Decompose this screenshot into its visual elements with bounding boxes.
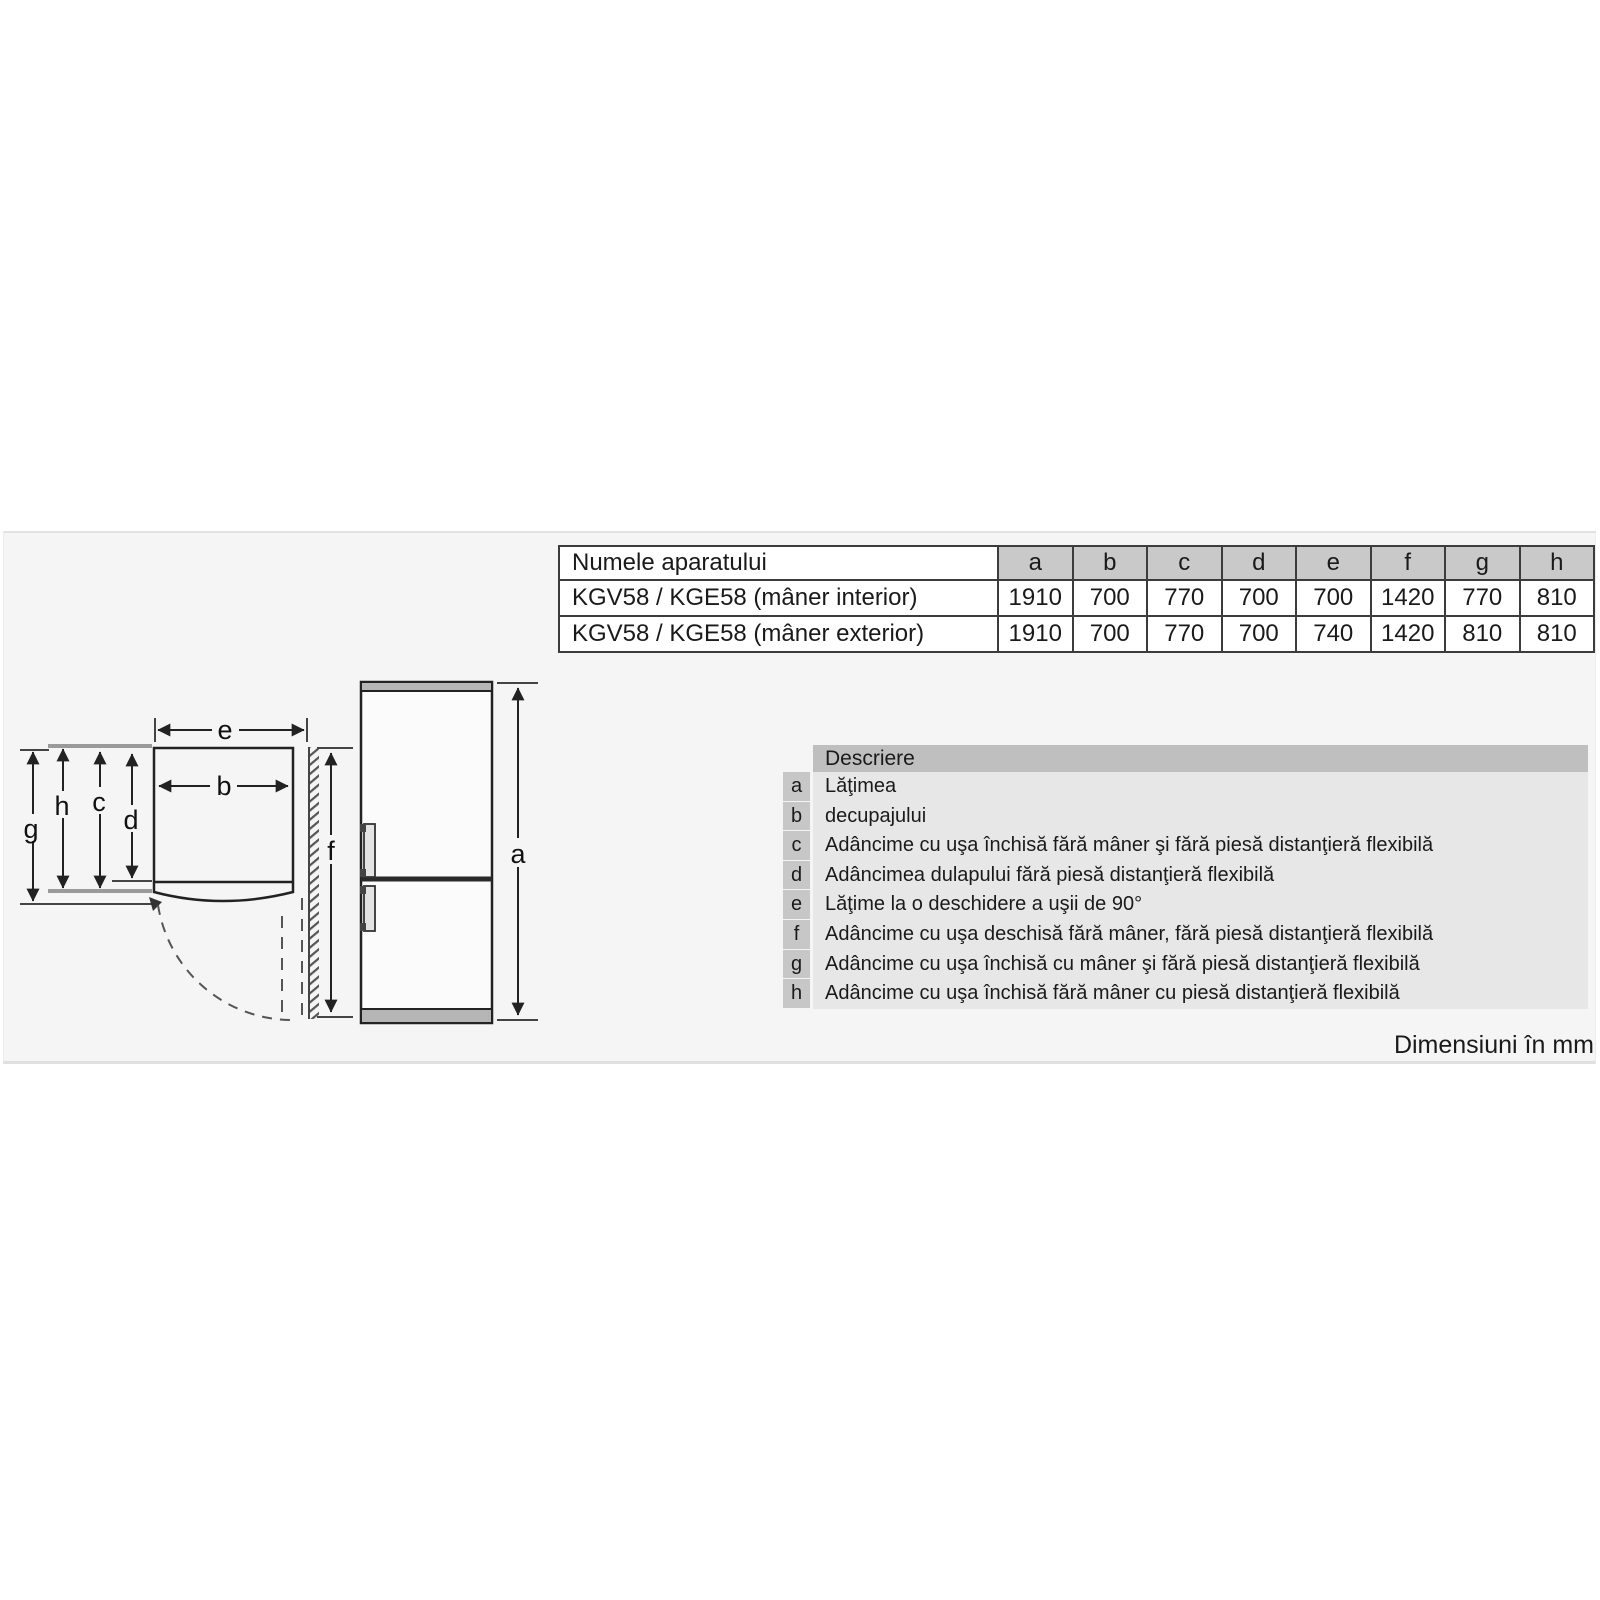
description-letter-h: h [783,979,810,1008]
value-cell: 770 [1147,616,1222,652]
table-header-col-g: g [1445,546,1520,580]
value-cell: 810 [1445,616,1520,652]
table-row: KGV58 / KGE58 (mâner exterior) 1910 700 … [559,616,1594,652]
value-cell: 770 [1147,580,1222,616]
description-letter-b: b [783,802,810,831]
dimension-label-g: g [23,814,38,844]
description-text-h: Adâncime cu uşa închisă fără mâner cu pi… [813,979,1588,1009]
description-header: Descriere [813,745,1588,772]
description-text-g: Adâncime cu uşa închisă cu mâner şi fără… [813,950,1588,980]
dimension-label-e: e [217,715,232,745]
dimension-label-h: h [54,791,69,821]
lower-handle-bracket-bottom [360,923,366,931]
description-letter-c: c [783,831,810,860]
manual-page: { "colors": { "content_bg": "#f5f5f5", "… [0,0,1600,1600]
front-view-plinth [361,1009,492,1023]
value-cell: 740 [1296,616,1371,652]
dimension-label-d: d [123,805,138,835]
description-body: Lăţimea decupajului Adâncime cu uşa înch… [813,772,1588,1009]
description-text-f: Adâncime cu uşa deschisă fără mâner, făr… [813,920,1588,950]
table-header-col-e: e [1296,546,1371,580]
value-cell: 770 [1445,580,1520,616]
dimension-label-c: c [92,787,106,817]
value-cell: 700 [1073,616,1148,652]
table-header-col-h: h [1520,546,1595,580]
value-cell: 700 [1073,580,1148,616]
value-cell: 1910 [998,616,1073,652]
wall-hatch [309,747,319,1019]
model-name: KGV58 / KGE58 (mâner interior) [559,580,998,616]
description-letter-f: f [783,920,810,949]
value-cell: 700 [1222,580,1297,616]
value-cell: 700 [1296,580,1371,616]
value-cell: 1910 [998,580,1073,616]
description-text-e: Lăţime la o deschidere a uşii de 90° [813,890,1588,920]
description-letter-column: a b c d e f g h [783,772,810,1008]
value-cell: 810 [1520,616,1595,652]
description-letter-d: d [783,861,810,890]
table-header-col-c: c [1147,546,1222,580]
table-header-col-a: a [998,546,1073,580]
value-cell: 700 [1222,616,1297,652]
top-view-door-closed [154,883,293,901]
model-name: KGV58 / KGE58 (mâner exterior) [559,616,998,652]
appliance-dimension-diagram: g h c d e b f a [0,650,560,1064]
value-cell: 1420 [1371,616,1446,652]
description-text-a: Lăţimea [813,772,1588,802]
table-row: KGV58 / KGE58 (mâner interior) 1910 700 … [559,580,1594,616]
table-header-col-d: d [1222,546,1297,580]
table-header-name: Numele aparatului [559,546,998,580]
table-header-col-b: b [1073,546,1148,580]
top-view-cabinet [154,748,293,882]
dimension-label-a: a [510,839,526,869]
door-swing-arc [158,905,295,1020]
front-view-body [361,682,492,1023]
front-view-top-band [361,682,492,691]
dimension-label-b: b [216,771,231,801]
description-text-d: Adâncimea dulapului fără piesă distanţie… [813,861,1588,891]
upper-handle-bracket-top [360,824,366,832]
value-cell: 1420 [1371,580,1446,616]
description-letter-a: a [783,772,810,801]
lower-handle-bracket-top [360,886,366,894]
table-header-row: Numele aparatului a b c d e f g h [559,546,1594,580]
description-letter-g: g [783,950,810,979]
dimensions-table: Numele aparatului a b c d e f g h KGV58 … [558,545,1595,653]
description-letter-e: e [783,890,810,919]
value-cell: 810 [1520,580,1595,616]
upper-handle-bracket-bottom [360,869,366,877]
description-text-b: decupajului [813,802,1588,832]
table-header-col-f: f [1371,546,1446,580]
description-text-c: Adâncime cu uşa închisă fără mâner şi fă… [813,831,1588,861]
units-note: Dimensiuni în mm [1094,1031,1594,1060]
dimension-label-f: f [327,836,335,866]
